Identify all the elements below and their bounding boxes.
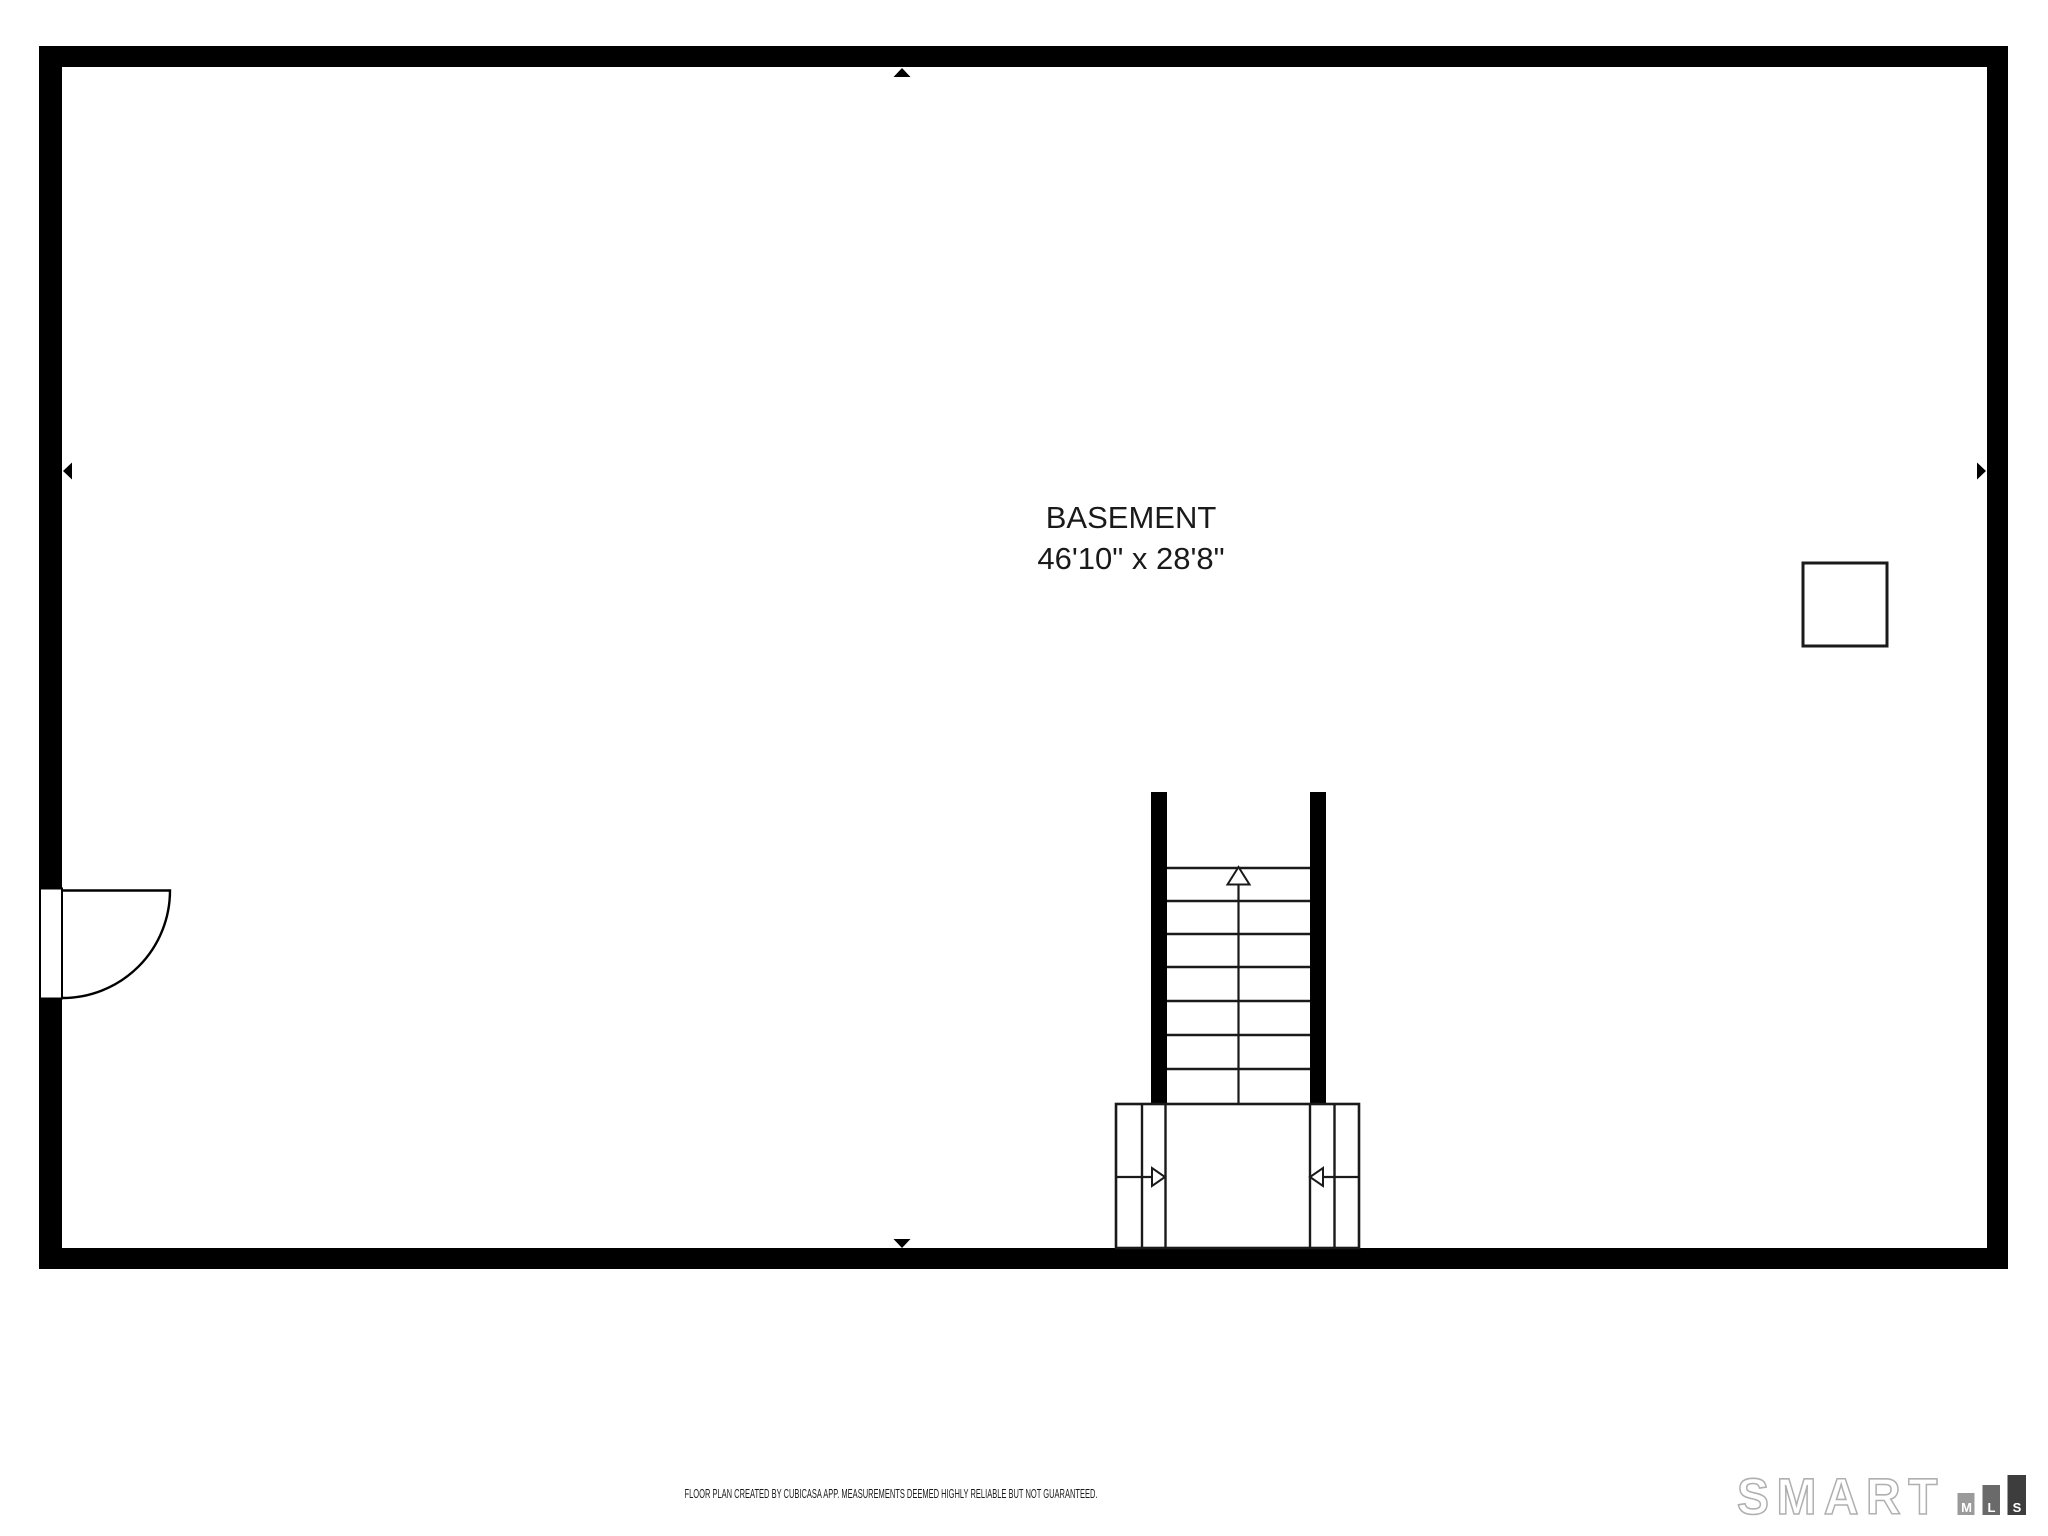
logo-bar-letter-m: M [1961, 1500, 1972, 1515]
logo-brand-text: SMART [1737, 1468, 1945, 1525]
exterior-walls [39, 46, 2008, 1269]
floor-plan-page: BASEMENT 46'10" x 28'8" FLOOR PLAN CREAT… [0, 0, 2048, 1536]
stair-up-arrow-icon [1228, 867, 1250, 885]
room-name-label: BASEMENT [1046, 500, 1217, 535]
wall-marker-right-icon [1977, 463, 1986, 480]
logo-bar-letter-s: S [2013, 1500, 2022, 1515]
wall-marker-left-icon [63, 463, 72, 480]
room-dimensions-label: 46'10" x 28'8" [1037, 541, 1224, 576]
floor-plan-canvas: BASEMENT 46'10" x 28'8" FLOOR PLAN CREAT… [0, 0, 2048, 1536]
smartmls-logo: SMART M L S [1737, 1468, 2026, 1525]
wall-marker-top-icon [894, 68, 911, 77]
logo-bar-letter-l: L [1988, 1500, 1996, 1515]
door-opening [40, 889, 62, 999]
stairwell-left-wall [1151, 792, 1167, 1104]
wall-marker-bottom-icon [894, 1239, 911, 1248]
door-swing-icon [62, 891, 170, 999]
footer-disclaimer: FLOOR PLAN CREATED BY CUBICASA APP. MEAS… [685, 1486, 1098, 1501]
utility-square [1803, 563, 1887, 646]
stairwell-right-wall [1310, 792, 1326, 1104]
